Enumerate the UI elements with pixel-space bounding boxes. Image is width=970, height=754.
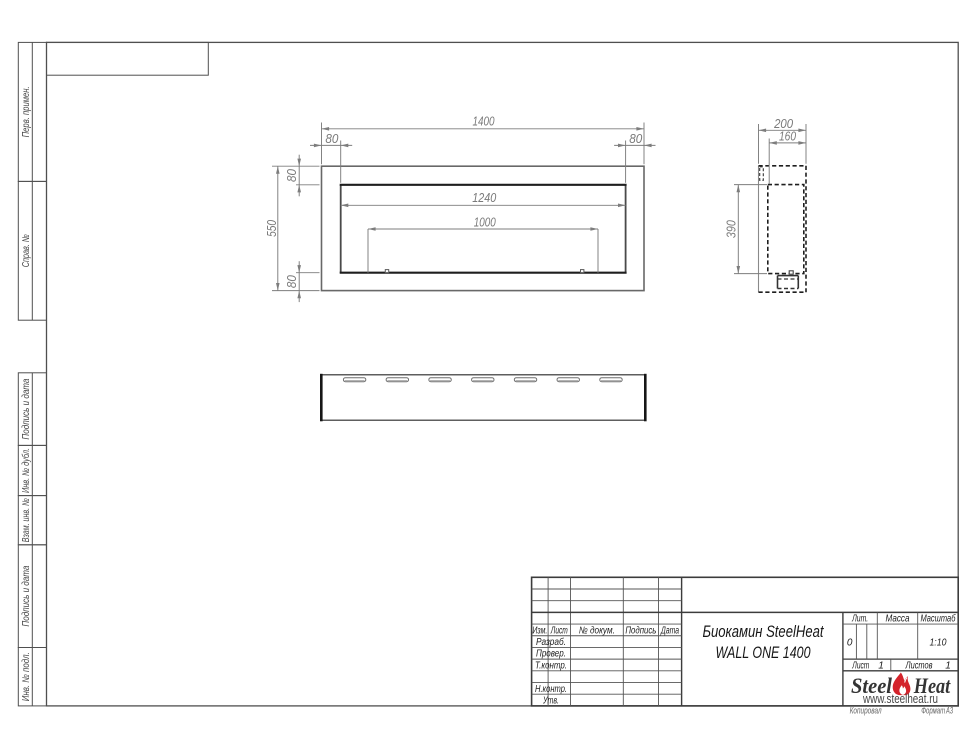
svg-text:Подпись и дата: Подпись и дата (21, 378, 32, 439)
svg-text:390: 390 (724, 219, 739, 238)
svg-text:80: 80 (629, 131, 643, 146)
svg-text:Инв. № дубл.: Инв. № дубл. (21, 448, 32, 493)
svg-text:Справ. №: Справ. № (21, 234, 32, 267)
svg-text:Утв.: Утв. (542, 695, 559, 706)
svg-text:1: 1 (945, 660, 951, 671)
svg-text:1400: 1400 (473, 114, 496, 129)
svg-text:80: 80 (325, 131, 339, 146)
svg-text:1:10: 1:10 (929, 637, 946, 648)
svg-text:160: 160 (779, 129, 797, 144)
svg-text:Подпись и дата: Подпись и дата (21, 565, 32, 626)
svg-text:1: 1 (878, 660, 884, 671)
svg-text:www.steelheat.ru: www.steelheat.ru (862, 692, 938, 706)
svg-text:Изм.: Изм. (532, 625, 547, 636)
svg-text:Инв. № подл.: Инв. № подл. (21, 652, 32, 701)
svg-text:Листов: Листов (905, 660, 933, 671)
svg-text:0: 0 (847, 637, 853, 648)
svg-text:1000: 1000 (474, 215, 497, 230)
svg-text:Н.контр.: Н.контр. (535, 684, 567, 695)
svg-text:Копировал: Копировал (850, 706, 882, 716)
svg-text:№ докум.: № докум. (579, 625, 615, 636)
svg-text:1240: 1240 (472, 190, 497, 205)
svg-text:Масштаб: Масштаб (920, 613, 955, 625)
svg-text:Формат: Формат (921, 706, 945, 716)
svg-text:Провер.: Провер. (536, 649, 566, 660)
svg-text:Лист: Лист (550, 625, 568, 636)
svg-text:Подпись: Подпись (625, 625, 656, 636)
svg-text:Разраб.: Разраб. (536, 636, 566, 648)
svg-text:550: 550 (264, 219, 279, 237)
svg-text:80: 80 (284, 168, 299, 182)
svg-text:Биокамин SteelHeat: Биокамин SteelHeat (703, 622, 825, 641)
svg-text:Перв. примен.: Перв. примен. (21, 86, 32, 137)
svg-text:Лит.: Лит. (851, 614, 868, 625)
svg-text:Взам. инв. №: Взам. инв. № (21, 498, 32, 542)
svg-text:80: 80 (284, 274, 299, 288)
svg-text:Масса: Масса (886, 614, 910, 625)
svg-text:Т.контр.: Т.контр. (535, 660, 567, 671)
svg-text:Дата: Дата (660, 625, 679, 636)
svg-text:А3: А3 (945, 706, 953, 716)
svg-text:WALL ONE 1400: WALL ONE 1400 (716, 643, 811, 662)
svg-text:Лист: Лист (852, 660, 870, 671)
